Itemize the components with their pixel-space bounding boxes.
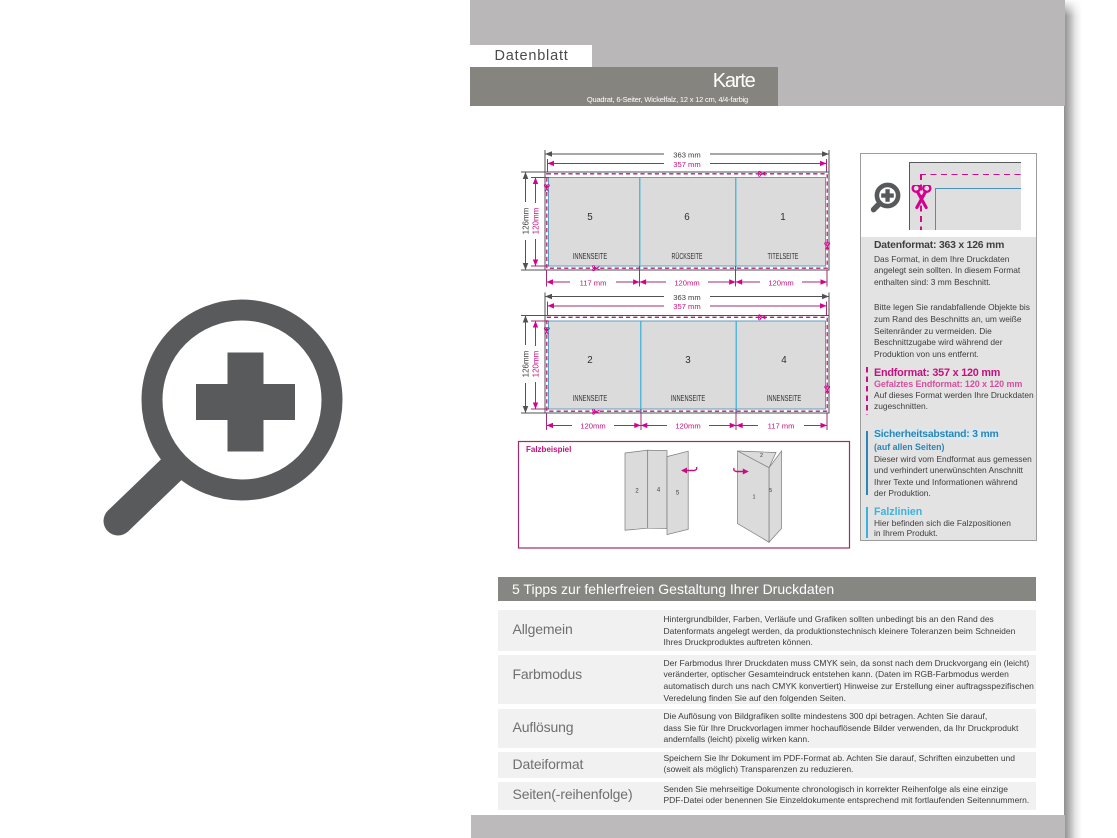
svg-text:120mm: 120mm — [768, 278, 793, 287]
svg-text:5: 5 — [769, 488, 772, 494]
svg-text:117 mm: 117 mm — [580, 278, 607, 287]
svg-text:INNENSEITE: INNENSEITE — [767, 394, 802, 403]
svg-text:120mm: 120mm — [580, 422, 605, 431]
svg-text:357 mm: 357 mm — [673, 302, 700, 311]
svg-text:1: 1 — [780, 212, 785, 223]
svg-text:INNENSEITE: INNENSEITE — [573, 252, 608, 261]
svg-text:Falzbeispiel: Falzbeispiel — [526, 445, 571, 454]
svg-text:120mm: 120mm — [532, 350, 541, 377]
svg-text:3: 3 — [685, 355, 691, 366]
svg-text:6: 6 — [684, 212, 690, 223]
svg-text:1: 1 — [753, 495, 756, 501]
svg-text:2: 2 — [587, 355, 592, 366]
svg-text:INNENSEITE: INNENSEITE — [671, 394, 706, 403]
svg-text:126mm: 126mm — [522, 207, 531, 234]
svg-text:4: 4 — [781, 355, 787, 366]
svg-text:5: 5 — [587, 212, 593, 223]
svg-text:RÜCKSEITE: RÜCKSEITE — [672, 252, 703, 261]
svg-text:363 mm: 363 mm — [673, 293, 700, 302]
svg-text:120mm: 120mm — [674, 278, 699, 287]
svg-text:120mm: 120mm — [532, 207, 541, 234]
svg-text:117 mm: 117 mm — [768, 422, 795, 431]
svg-text:TITELSEITE: TITELSEITE — [768, 252, 799, 261]
svg-text:363 mm: 363 mm — [673, 151, 700, 160]
svg-text:126mm: 126mm — [522, 350, 531, 377]
svg-text:120mm: 120mm — [675, 422, 700, 431]
svg-text:357 mm: 357 mm — [673, 160, 700, 169]
svg-text:2: 2 — [760, 453, 763, 459]
svg-text:INNENSEITE: INNENSEITE — [573, 394, 608, 403]
